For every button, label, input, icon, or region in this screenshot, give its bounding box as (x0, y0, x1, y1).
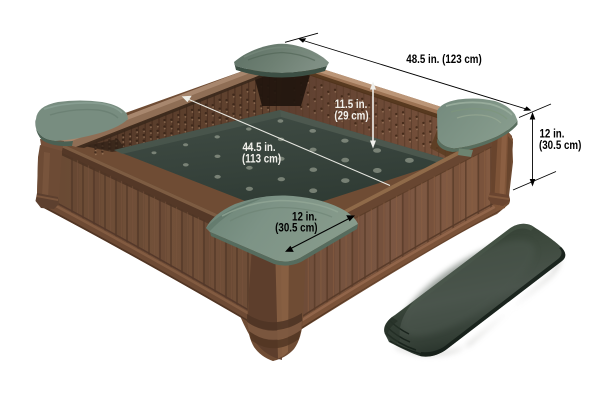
svg-text:(30.5 cm): (30.5 cm) (275, 222, 318, 235)
svg-text:(30.5 cm): (30.5 cm) (539, 139, 582, 152)
svg-text:(113 cm): (113 cm) (242, 153, 281, 166)
svg-text:(29 cm): (29 cm) (334, 110, 369, 123)
svg-text:48.5 in. (123 cm): 48.5 in. (123 cm) (406, 53, 482, 66)
